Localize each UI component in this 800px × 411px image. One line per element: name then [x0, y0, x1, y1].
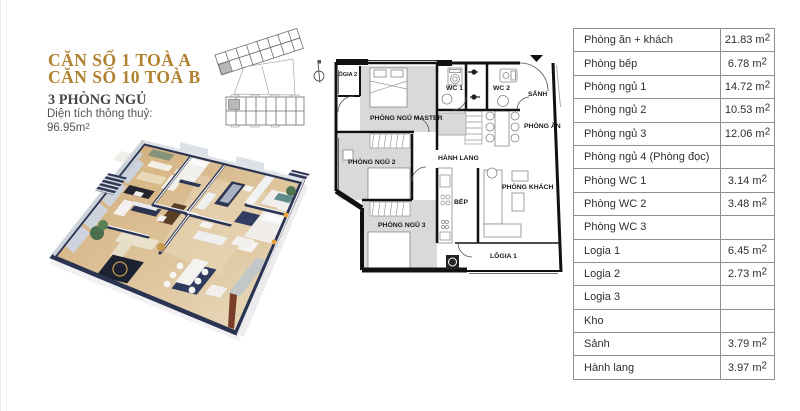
svg-text:BẾP: BẾP [454, 196, 468, 206]
svg-text:HÀNH LANG: HÀNH LANG [438, 153, 479, 162]
svg-text:PHÒNG NGỦ 3: PHÒNG NGỦ 3 [378, 220, 426, 229]
svg-text:WC 2: WC 2 [493, 85, 510, 92]
svg-text:LÔGIA 2: LÔGIA 2 [335, 70, 357, 78]
svg-text:PHÒNG KHÁCH: PHÒNG KHÁCH [502, 182, 553, 191]
svg-text:PHÒNG ĂN: PHÒNG ĂN [524, 121, 561, 130]
svg-text:SẢNH: SẢNH [528, 89, 547, 98]
svg-text:PHÒNG NGỦ 2: PHÒNG NGỦ 2 [348, 157, 396, 166]
svg-text:WC 1: WC 1 [446, 85, 463, 92]
svg-text:PHÒNG NGỦ MASTER: PHÒNG NGỦ MASTER [370, 113, 443, 122]
svg-text:LÔGIA 1: LÔGIA 1 [490, 251, 517, 260]
